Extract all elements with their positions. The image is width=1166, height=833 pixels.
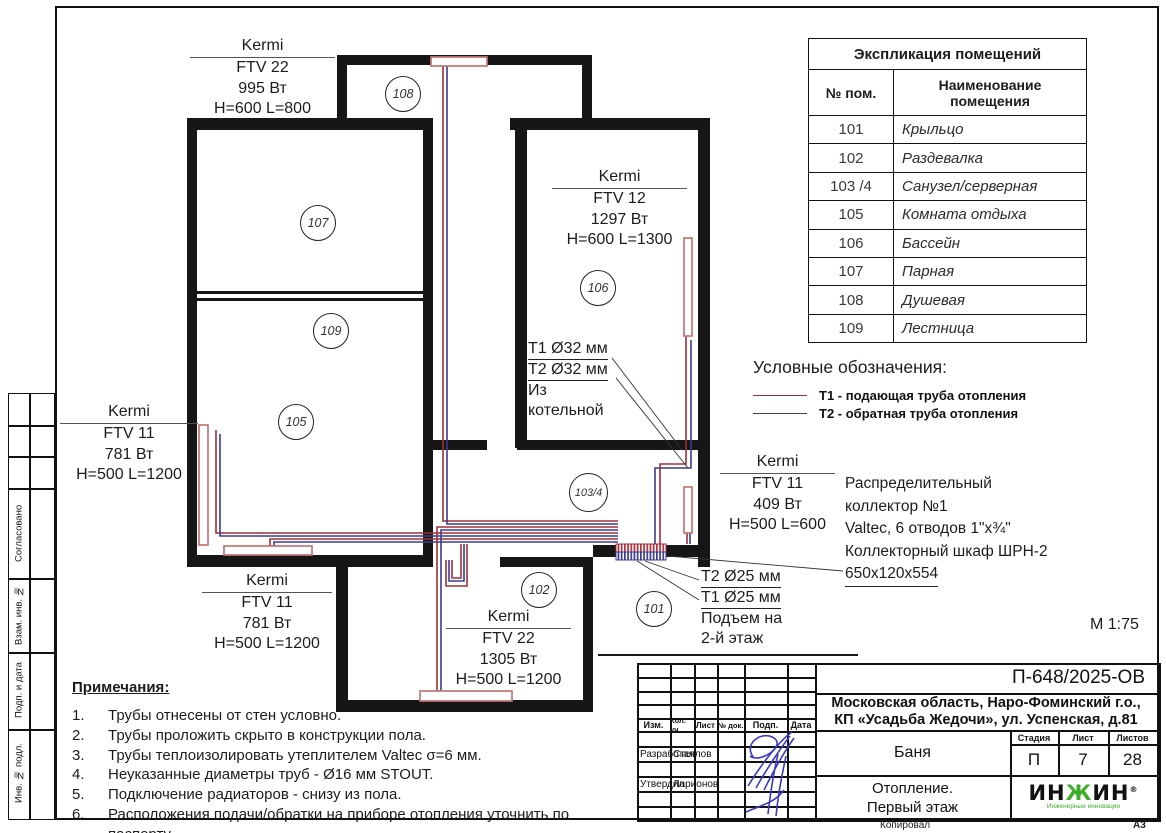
room-num: 103 /4 [809,173,894,200]
from-boiler-label2: котельной [528,402,604,419]
object-name: Баня [815,730,1010,775]
company-logo: ИНЖИН® Инженерные инновации [1010,780,1157,810]
legend: Условные обозначения: Т1 - подающая труб… [753,357,1026,421]
radiator-model: FTV 11 [752,475,803,492]
table-row: 102Раздевалка [809,144,1086,172]
riser-note: Т2 Ø25 мм Т1 Ø25 мм Подъем на 2-й этаж [701,567,782,649]
radiator-model: FTV 22 [482,630,534,647]
t2-d25-label: Т2 Ø25 мм [701,567,781,588]
riser-to-floor2-label: Подъем на [701,610,782,627]
room-num: 101 [809,116,894,143]
project-address: Московская область, Наро-Фоминский г.о.,… [815,695,1157,729]
explication-title: Экспликация помещений [809,39,1086,70]
table-row: 107Парная [809,258,1086,286]
note-item: 1.Трубы отнесены от стен условно. [72,706,632,726]
explication-header: № пом. Наименование помещения [809,70,1086,116]
collector-line3: Valtec, 6 отводов 1"x¾" [845,520,1011,537]
radiator-size: H=600 L=1300 [567,231,673,248]
radiator-power: 1297 Вт [591,211,649,228]
radiator-brand: Kermi [60,402,198,424]
room-num: 105 [809,201,894,228]
logo-text: ИН [1028,781,1065,805]
riser-to-floor2-label2: 2-й этаж [701,630,763,647]
note-text: Трубы проложить скрыто в конструкции пол… [108,726,426,746]
radiator-power: 995 Вт [238,80,287,97]
registered-mark: ® [1130,785,1139,794]
notes-block: Примечания: 1.Трубы отнесены от стен усл… [72,679,632,833]
manifold [616,544,666,560]
room-circle-108: 108 [385,76,421,112]
radiator-power: 1305 Вт [480,651,538,668]
radiator-label-pool: Kermi FTV 12 1297 Вт H=600 L=1300 [552,167,687,250]
notes-title: Примечания: [72,679,632,696]
legend-item-t1: Т1 - подающая труба отопления [753,388,1026,403]
radiator-model: FTV 11 [103,425,154,442]
logo-text-green: Ж [1066,781,1093,805]
radiator-size: H=600 L=800 [214,100,311,117]
sheet-value: 7 [1058,744,1108,775]
drawing-sheet: 108 107 109 105 106 103/4 102 101 Kermi … [0,0,1166,833]
radiator-brand: Kermi [552,167,687,189]
note-item: 6.Расположения подачи/обратки на приборе… [72,805,632,833]
room-circle-102: 102 [521,572,557,608]
note-text: Трубы теплоизолировать утеплителем Valte… [108,746,482,766]
room-num: 107 [809,258,894,285]
from-boiler-label: Из [528,382,547,399]
radiator-label-shower: Kermi FTV 22 995 Вт H=600 L=800 [190,36,335,119]
col-kol: Кол. уч [670,719,694,731]
note-text: Трубы отнесены от стен условно. [108,706,341,726]
approved-name: Ларионов [673,779,718,790]
table-row: 101Крыльцо [809,116,1086,144]
room-circle-101: 101 [636,591,672,627]
room-circle-107: 107 [300,205,336,241]
table-row: 108Душевая [809,286,1086,314]
room-num: 102 [809,144,894,171]
room-name: Парная [894,258,1086,285]
room-number: 105 [286,415,307,429]
drawing-name: Отопление. Первый этаж [815,779,1010,817]
note-item: 2.Трубы проложить скрыто в конструкции п… [72,726,632,746]
sheets-value: 28 [1108,744,1157,775]
t2-line-swatch [753,413,807,414]
note-text: Неуказанные диаметры труб - Ø16 мм STOUT… [108,765,433,785]
format-label: А3 [1133,820,1146,831]
radiator-brand: Kermi [190,36,335,58]
radiator-label-wc: Kermi FTV 11 409 Вт H=500 L=600 [720,452,835,535]
room-name: Крыльцо [894,116,1086,143]
radiator-label-lounge-bottom: Kermi FTV 11 781 Вт H=500 L=1200 [202,571,332,654]
collector-line1: Распределительный [845,475,992,492]
podp-data-label: Подп. и дата [9,652,29,729]
agreed-label: Согласовано [9,488,29,578]
sheet-label: Лист [1058,731,1108,744]
drawing-name-line1: Отопление. [872,780,953,797]
stage-label: Стадия [1010,731,1058,744]
address-line1: Московская область, Наро-Фоминский г.о., [831,695,1140,711]
radiator-label-changing: Kermi FTV 22 1305 Вт H=500 L=1200 [446,607,571,690]
col-room-number: № пом. [809,70,894,115]
logo-text: ИН [1092,781,1129,805]
copied-label: Копировал [880,820,930,831]
vzam-inv-label: Взам. инв. № [9,578,29,652]
collector-note: Распределительный коллектор №1 Valtec, 6… [845,473,1048,587]
note-item: 4.Неуказанные диаметры труб - Ø16 мм STO… [72,765,632,785]
developed-name: Стеклов [673,749,712,760]
scale-label: М 1:75 [1090,616,1139,634]
legend-item-t2: Т2 - обратная труба отопления [753,406,1026,421]
legend-title: Условные обозначения: [753,357,1026,378]
radiator-model: FTV 22 [236,59,288,76]
project-code: П-648/2025-ОВ [815,663,1145,693]
radiator-power: 781 Вт [243,615,292,632]
radiator-model: FTV 12 [593,190,645,207]
legend-t2-label: Т2 - обратная труба отопления [819,406,1018,421]
t1-d25-label: Т1 Ø25 мм [701,588,781,609]
drawing-name-line2: Первый этаж [867,799,958,816]
table-row: 109Лестница [809,315,1086,342]
note-number: 4. [72,765,108,785]
sheets-label: Листов [1108,731,1157,744]
legend-t1-label: Т1 - подающая труба отопления [819,388,1026,403]
room-name: Раздевалка [894,144,1086,171]
table-row: 103 /4Санузел/серверная [809,173,1086,201]
table-row: 105Комната отдыха [809,201,1086,229]
table-row: 106Бассейн [809,230,1086,258]
room-circle-106: 106 [580,270,616,306]
room-number: 109 [321,324,342,338]
room-number: 106 [588,281,609,295]
col-list: Лист [694,719,717,731]
note-number: 2. [72,726,108,746]
t2-d32-label: Т2 Ø32 мм [528,360,608,381]
boiler-supply-note: Т1 Ø32 мм Т2 Ø32 мм Из котельной [528,339,608,421]
room-number: 102 [529,583,550,597]
room-circle-109: 109 [313,313,349,349]
col-izm: Изм. [637,719,670,731]
t1-d32-label: Т1 Ø32 мм [528,339,608,360]
note-number: 5. [72,785,108,805]
t1-line-swatch [753,395,807,396]
room-explication-table: Экспликация помещений № пом. Наименовани… [808,38,1087,343]
radiator-power: 781 Вт [105,446,154,463]
radiator-size: H=500 L=1200 [76,466,182,483]
room-number: 103/4 [575,487,603,499]
radiator-size: H=500 L=1200 [214,635,320,652]
note-item: 5.Подключение радиаторов - снизу из пола… [72,785,632,805]
inv-podl-label: Инв. № подл. [9,729,29,818]
room-name: Санузел/серверная [894,173,1086,200]
col-room-name: Наименование помещения [894,70,1086,115]
room-num: 109 [809,315,894,342]
room-name: Лестница [894,315,1086,342]
stage-value: П [1010,744,1058,775]
note-text: Расположения подачи/обратки на приборе о… [108,805,632,833]
radiator-brand: Kermi [202,571,332,593]
radiator-model: FTV 11 [241,594,292,611]
collector-line4: Коллекторный шкаф ШРН-2 [845,543,1048,560]
room-number: 108 [393,87,414,101]
room-number: 101 [644,602,665,616]
address-line2: КП «Усадьба Жедочи», ул. Успенская, д.81 [834,712,1137,728]
room-name: Душевая [894,286,1086,313]
room-circle-103-4: 103/4 [569,473,608,512]
room-circle-105: 105 [278,404,314,440]
signature [740,726,802,820]
room-name: Комната отдыха [894,201,1086,228]
room-num: 106 [809,230,894,257]
note-number: 6. [72,805,108,833]
room-name: Бассейн [894,230,1086,257]
radiator-label-lounge-left: Kermi FTV 11 781 Вт H=500 L=1200 [60,402,198,485]
note-item: 3.Трубы теплоизолировать утеплителем Val… [72,746,632,766]
room-num: 108 [809,286,894,313]
note-number: 3. [72,746,108,766]
note-text: Подключение радиаторов - снизу из пола. [108,785,402,805]
collector-line2: коллектор №1 [845,498,948,515]
radiator-size: H=500 L=600 [729,516,826,533]
radiator-brand: Kermi [446,607,571,629]
note-number: 1. [72,706,108,726]
room-number: 107 [308,216,329,230]
collector-line5: 650x120x554 [845,563,938,587]
radiator-power: 409 Вт [753,496,802,513]
radiator-brand: Kermi [720,452,835,474]
